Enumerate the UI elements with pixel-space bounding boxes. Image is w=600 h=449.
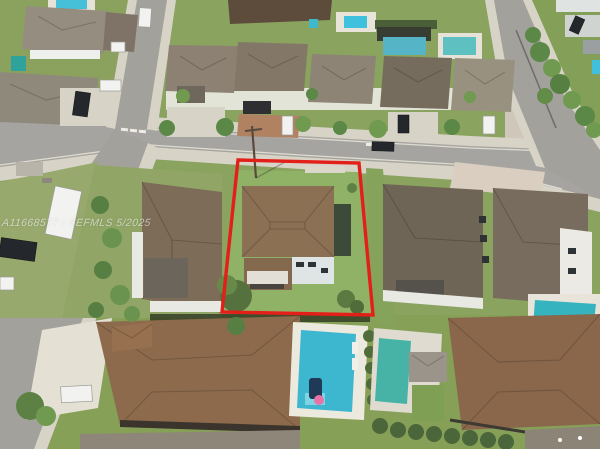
car-on-street [138,8,151,28]
bottom-right-roof-strip [525,426,600,449]
aerial-photo: A11668577 / SEFMLS 5/2025 [0,0,600,449]
pool-small [344,16,367,28]
house-roof [565,15,600,37]
patio-awning [11,56,26,71]
house-roof-h4 [380,56,452,109]
aerial-scene [0,0,600,449]
white-car [483,116,495,134]
house-roof-h5 [451,58,515,112]
front-walkway [305,166,345,173]
white-van [100,80,121,91]
casita-awning [247,271,288,284]
pool-b [375,338,411,404]
pool-float [314,395,324,405]
house-roof [22,6,108,54]
house-roof [556,0,600,12]
bottom-right-roof [448,314,600,430]
white-car [0,277,14,290]
driveway [167,107,225,137]
garage-door [243,101,271,114]
porch-roof [144,258,188,298]
white-car [282,116,293,135]
spa [309,19,318,28]
pool-backyard-2 [443,37,476,55]
white-box-truck [111,42,125,52]
house-roof-h2 [234,42,308,91]
house-roof [583,40,600,54]
house-roof-h1 [165,45,238,93]
pool-right-edge [592,60,600,74]
dark-suv [72,91,90,117]
dark-car [398,115,409,133]
rear-fence-screen [334,204,351,256]
white-car [61,385,93,403]
driveway [388,112,438,138]
pool-backyard [383,37,426,55]
car-on-road [372,142,394,152]
playground [16,162,43,176]
pool-top-left [56,0,87,9]
